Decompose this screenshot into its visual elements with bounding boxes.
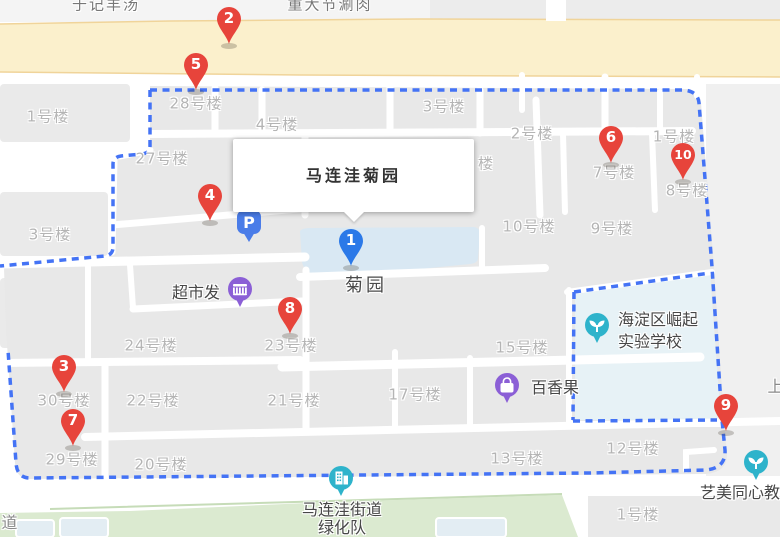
school-label-line1: 海淀区崛起 bbox=[618, 306, 698, 330]
building-label: 13号楼 bbox=[490, 448, 543, 469]
building-label: 道 bbox=[1, 509, 18, 533]
marker-9[interactable]: 9 bbox=[711, 392, 741, 432]
marker-5[interactable]: 5 bbox=[181, 51, 211, 91]
parking-icon[interactable] bbox=[234, 209, 264, 249]
school-icon[interactable] bbox=[582, 312, 612, 352]
education-icon[interactable] bbox=[741, 449, 771, 489]
shopping-bag-icon[interactable] bbox=[492, 372, 522, 412]
marker-6[interactable]: 6 bbox=[596, 124, 626, 164]
building-label: 上 bbox=[767, 373, 780, 397]
building-label: 3号楼 bbox=[423, 96, 466, 117]
supermarket-icon[interactable] bbox=[225, 276, 255, 316]
greening-team-label-line2: 绿化队 bbox=[318, 514, 366, 537]
marker-3[interactable]: 3 bbox=[49, 353, 79, 393]
map-canvas[interactable]: P bbox=[0, 0, 780, 537]
building-label: 1号楼 bbox=[617, 504, 660, 525]
building-label: 24号楼 bbox=[124, 335, 177, 356]
marker-2[interactable]: 2 bbox=[214, 5, 244, 45]
marker-4[interactable]: 4 bbox=[195, 182, 225, 222]
info-window-pointer bbox=[344, 212, 364, 222]
building-label: 29号楼 bbox=[45, 449, 98, 470]
marker-10[interactable]: 10 bbox=[668, 141, 698, 181]
building-label: 4号楼 bbox=[256, 114, 299, 135]
school-label-line2: 实验学校 bbox=[618, 328, 682, 352]
building-label: 1号楼 bbox=[27, 106, 70, 127]
marker-8[interactable]: 8 bbox=[275, 295, 305, 335]
garden-label: 菊园 bbox=[345, 271, 387, 297]
map-tiles: P bbox=[0, 0, 780, 537]
building-label: 15号楼 bbox=[495, 337, 548, 358]
building-label: 2号楼 bbox=[511, 123, 554, 144]
building-label: 10号楼 bbox=[502, 216, 555, 237]
info-window[interactable]: 马连洼菊园 bbox=[233, 139, 474, 212]
building-label: 17号楼 bbox=[388, 384, 441, 405]
building-label: 28号楼 bbox=[169, 93, 222, 114]
building-label: 21号楼 bbox=[267, 390, 320, 411]
building-label: 22号楼 bbox=[126, 390, 179, 411]
building-label: 3号楼 bbox=[29, 224, 72, 245]
supermarket-label: 超市发 bbox=[172, 279, 220, 303]
fruitshop-label: 百香果 bbox=[531, 374, 579, 398]
info-window-title: 马连洼菊园 bbox=[233, 162, 474, 186]
office-icon[interactable] bbox=[326, 465, 356, 505]
building-label: 27号楼 bbox=[135, 148, 188, 169]
building-label: 楼 bbox=[478, 153, 494, 174]
building-label: 9号楼 bbox=[591, 218, 634, 239]
building-label: 12号楼 bbox=[606, 438, 659, 459]
restaurant-label: 重大节涮肉 bbox=[287, 0, 372, 15]
marker-7[interactable]: 7 bbox=[58, 407, 88, 447]
restaurant-label: 于记羊汤 bbox=[72, 0, 140, 15]
building-label: 20号楼 bbox=[134, 454, 187, 475]
marker-1[interactable]: 1 bbox=[336, 227, 366, 267]
